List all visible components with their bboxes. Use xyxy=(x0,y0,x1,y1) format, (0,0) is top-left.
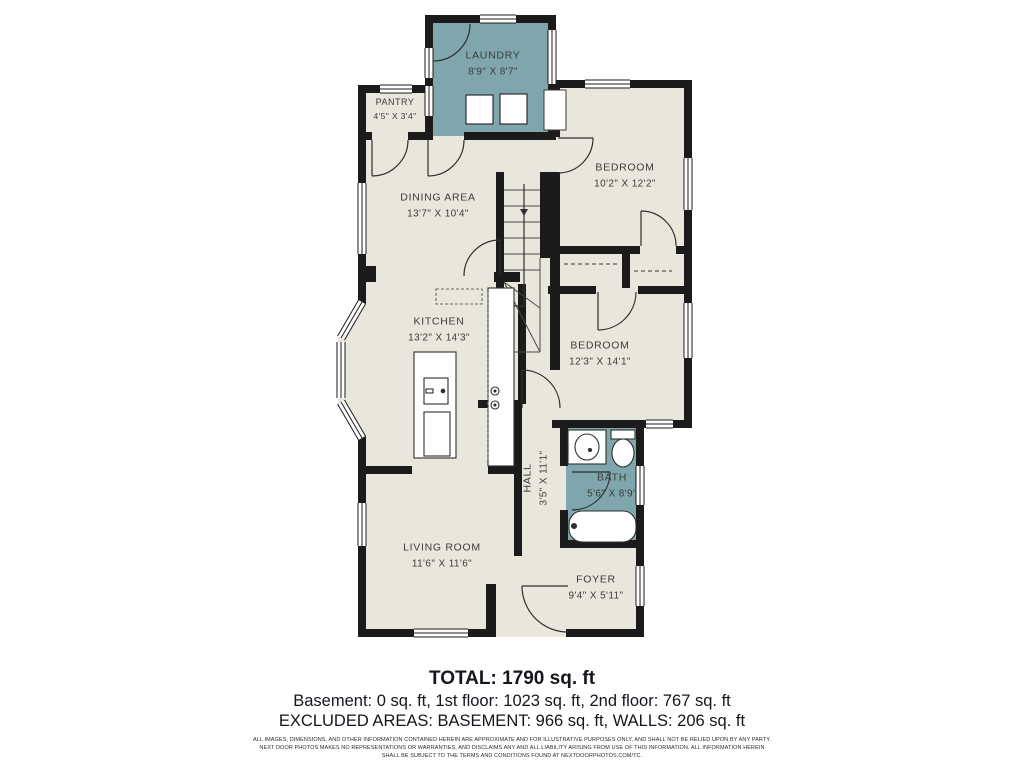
room-label-bedroom-2: BEDROOM 12'3" X 14'1" xyxy=(569,339,631,370)
room-name: LIVING ROOM xyxy=(403,541,481,557)
sink-drain xyxy=(589,449,592,452)
bedroom-closet xyxy=(544,90,566,130)
room-name: BEDROOM xyxy=(569,339,631,355)
stove-burner-dot xyxy=(494,390,496,392)
room-dims: 12'3" X 14'1" xyxy=(569,354,631,369)
room-dims: 13'2" X 14'3" xyxy=(408,330,470,345)
room-dims: 10'2" X 12'2" xyxy=(594,176,656,191)
wall xyxy=(358,266,376,282)
room-name: PANTRY xyxy=(374,96,417,110)
room-label-hall: HALL 3'5" X 11'1" xyxy=(521,450,552,505)
wall xyxy=(488,466,516,474)
wall xyxy=(638,286,692,294)
total-area-text: TOTAL: 1790 sq. ft xyxy=(0,668,1024,691)
wall xyxy=(622,252,630,288)
room-name: KITCHEN xyxy=(408,315,470,331)
washer xyxy=(466,95,493,124)
wall xyxy=(566,629,644,637)
tub-faucet xyxy=(572,524,577,529)
room-label-living-room: LIVING ROOM 11'6" X 11'6" xyxy=(403,541,481,572)
room-dims: 3'5" X 11'1" xyxy=(536,450,551,505)
room-name: LAUNDRY xyxy=(466,49,521,65)
wall xyxy=(408,132,428,140)
disclaimer-text: ALL IMAGES, DIMENSIONS, AND OTHER INFORM… xyxy=(0,737,1024,761)
wall xyxy=(540,172,552,258)
excluded-areas-text: EXCLUDED AREAS: BASEMENT: 966 sq. ft, WA… xyxy=(0,711,1024,732)
disclaimer-line: SHALL BE SUBJECT TO THE TERMS AND CONDIT… xyxy=(0,753,1024,761)
wall xyxy=(486,584,496,637)
toilet-tank xyxy=(611,430,635,439)
island-sink-handle xyxy=(426,389,433,393)
room-dims: 4'5" X 3'4" xyxy=(374,109,417,122)
dryer xyxy=(500,94,527,124)
room-name: HALL xyxy=(521,450,537,505)
island-sink-drain xyxy=(441,389,445,393)
wall xyxy=(560,420,568,466)
room-label-foyer: FOYER 9'4" X 5'11" xyxy=(568,573,623,604)
toilet-bowl xyxy=(612,439,634,467)
room-name: BEDROOM xyxy=(594,161,656,177)
kitchen-counter xyxy=(488,288,514,466)
room-dims: 11'6" X 11'6" xyxy=(403,556,481,571)
bathroom-sink xyxy=(575,434,599,460)
room-name: DINING AREA xyxy=(400,191,475,207)
wall xyxy=(358,466,412,474)
wall xyxy=(464,132,556,140)
room-dims: 8'9" X 8'7" xyxy=(466,64,521,79)
disclaimer-line: NEXT DOOR PHOTOS MAKES NO REPRESENTATION… xyxy=(0,745,1024,753)
room-name: FOYER xyxy=(568,573,623,589)
stove-burner-dot xyxy=(494,404,496,406)
wall xyxy=(676,246,692,254)
room-dims: 13'7" X 10'4" xyxy=(400,206,475,221)
island-cabinet xyxy=(424,412,450,456)
room-label-bath: BATH 5'6" X 8'9" xyxy=(587,471,637,502)
room-label-kitchen: KITCHEN 13'2" X 14'3" xyxy=(408,315,470,346)
room-label-bedroom-1: BEDROOM 10'2" X 12'2" xyxy=(594,161,656,192)
room-label-dining-area: DINING AREA 13'7" X 10'4" xyxy=(400,191,475,222)
bathtub xyxy=(569,511,636,542)
wall xyxy=(548,286,596,294)
room-dims: 9'4" X 5'11" xyxy=(568,588,623,603)
floorplan-svg xyxy=(0,0,1024,768)
room-name: BATH xyxy=(587,471,637,487)
area-summary: TOTAL: 1790 sq. ft Basement: 0 sq. ft, 1… xyxy=(0,668,1024,761)
floorplan-image: LAUNDRY 8'9" X 8'7" PANTRY 4'5" X 3'4" D… xyxy=(0,0,1024,768)
floor-areas-text: Basement: 0 sq. ft, 1st floor: 1023 sq. … xyxy=(0,691,1024,712)
disclaimer-line: ALL IMAGES, DIMENSIONS, AND OTHER INFORM… xyxy=(0,737,1024,745)
room-dims: 5'6" X 8'9" xyxy=(587,486,637,501)
room-label-pantry: PANTRY 4'5" X 3'4" xyxy=(374,96,417,122)
room-label-laundry: LAUNDRY 8'9" X 8'7" xyxy=(466,49,521,80)
wall xyxy=(358,132,372,140)
